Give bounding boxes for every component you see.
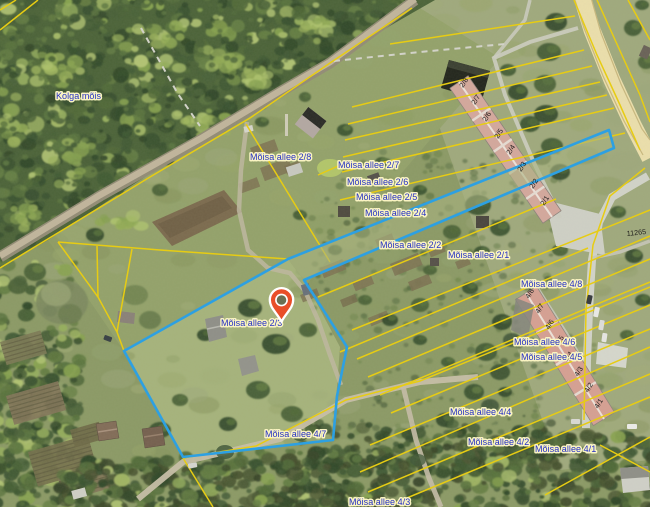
svg-text:Mõisa allee 4/8: Mõisa allee 4/8	[521, 279, 582, 289]
svg-text:Mõisa allee 2/3: Mõisa allee 2/3	[221, 318, 282, 328]
svg-text:Mõisa allee 2/8: Mõisa allee 2/8	[250, 152, 311, 162]
svg-text:Mõisa allee 4/5: Mõisa allee 4/5	[521, 352, 582, 362]
svg-text:Mõisa allee 4/3: Mõisa allee 4/3	[349, 497, 410, 507]
svg-text:Mõisa allee 2/1: Mõisa allee 2/1	[448, 250, 509, 260]
svg-text:Mõisa allee 2/2: Mõisa allee 2/2	[380, 240, 441, 250]
svg-text:Mõisa allee 4/1: Mõisa allee 4/1	[535, 444, 596, 454]
svg-text:Mõisa allee 4/4: Mõisa allee 4/4	[450, 407, 511, 417]
svg-text:Mõisa allee 4/2: Mõisa allee 4/2	[468, 437, 529, 447]
svg-text:Mõisa allee 4/6: Mõisa allee 4/6	[514, 337, 575, 347]
svg-text:Mõisa allee 2/7: Mõisa allee 2/7	[338, 160, 399, 170]
svg-text:Mõisa allee 2/6: Mõisa allee 2/6	[347, 177, 408, 187]
svg-text:Kolga mõis: Kolga mõis	[56, 91, 101, 101]
svg-text:Mõisa allee 4/7: Mõisa allee 4/7	[265, 429, 326, 439]
svg-text:Mõisa allee 2/5: Mõisa allee 2/5	[356, 192, 417, 202]
svg-text:Mõisa allee 2/4: Mõisa allee 2/4	[365, 208, 426, 218]
